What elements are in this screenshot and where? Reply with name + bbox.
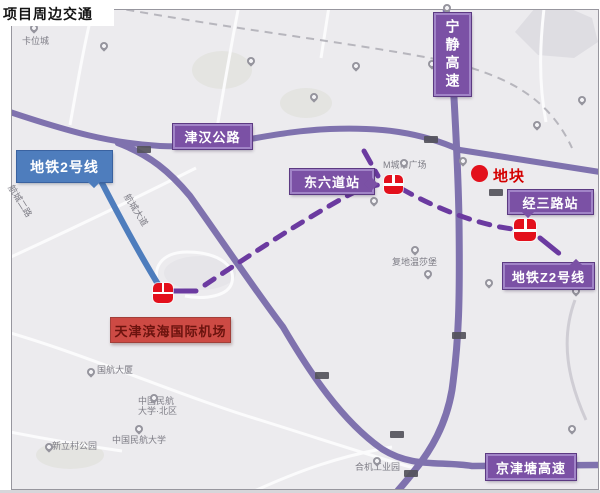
jingjintang-expressway-banner: 京津塘高速 [486,454,576,480]
road-shield-badge [489,189,503,196]
basemap-label: 复地温莎堡 [392,257,437,267]
ningjing-expressway-label: 宁静高速 [443,19,463,91]
minor-road [567,300,586,420]
road-network-layer [0,0,600,493]
airport-label: 天津滨海国际机场 [114,321,226,340]
built-up-patch [515,5,598,58]
dongliudao-station-banner: 东六道站 [290,169,374,194]
jingsanlu-station-banner: 经三路站 [508,190,593,214]
jinhan-highway-banner: 津汉公路 [173,124,252,149]
page-title: 项目周边交通 [3,4,114,24]
basemap-label: 新立村公园 [52,441,97,451]
road-shield-badge [315,372,329,379]
metro-lineZ2-banner: 地铁Z2号线 [503,263,594,289]
basemap-label: 卡位城 [22,36,49,46]
ningjing-expressway-banner: 宁静高速 [434,13,471,96]
jingjintang-expressway-label: 京津塘高速 [496,458,566,477]
title-box: 项目周边交通 [0,0,114,26]
metro-line2-label: 地铁2号线 [30,157,99,177]
road-shield-badge [424,136,438,143]
road-shield-badge [137,146,151,153]
airport-station-icon [153,283,173,303]
slide: 卡位城M城市广场复地温莎堡航城大道航城二路国航大厦中国民航 大学·北区中国民航大… [0,0,600,493]
metro-lineZ2-label: 地铁Z2号线 [512,267,585,286]
basemap-label: 国航大厦 [97,365,133,375]
metro-line2-banner: 地铁2号线 [17,151,112,182]
jingsanlu-station-icon [514,219,536,241]
highways [10,0,600,493]
basemap-label: 中国民航大学 [112,435,166,445]
dongliudao-station-icon [384,175,403,194]
airport-banner: 天津滨海国际机场 [110,317,231,343]
plot-dot-marker [471,165,488,182]
road-shield-badge [404,470,418,477]
dongliudao-station-label: 东六道站 [304,172,360,191]
road-shield-badge [452,332,466,339]
jingsanlu-station-label: 经三路站 [522,193,578,212]
park-patch [192,51,252,89]
road-shield-badge [390,431,404,438]
park-patch [280,88,332,118]
plot-label: 地块 [493,165,525,186]
jinhan-highway-label: 津汉公路 [184,127,240,146]
